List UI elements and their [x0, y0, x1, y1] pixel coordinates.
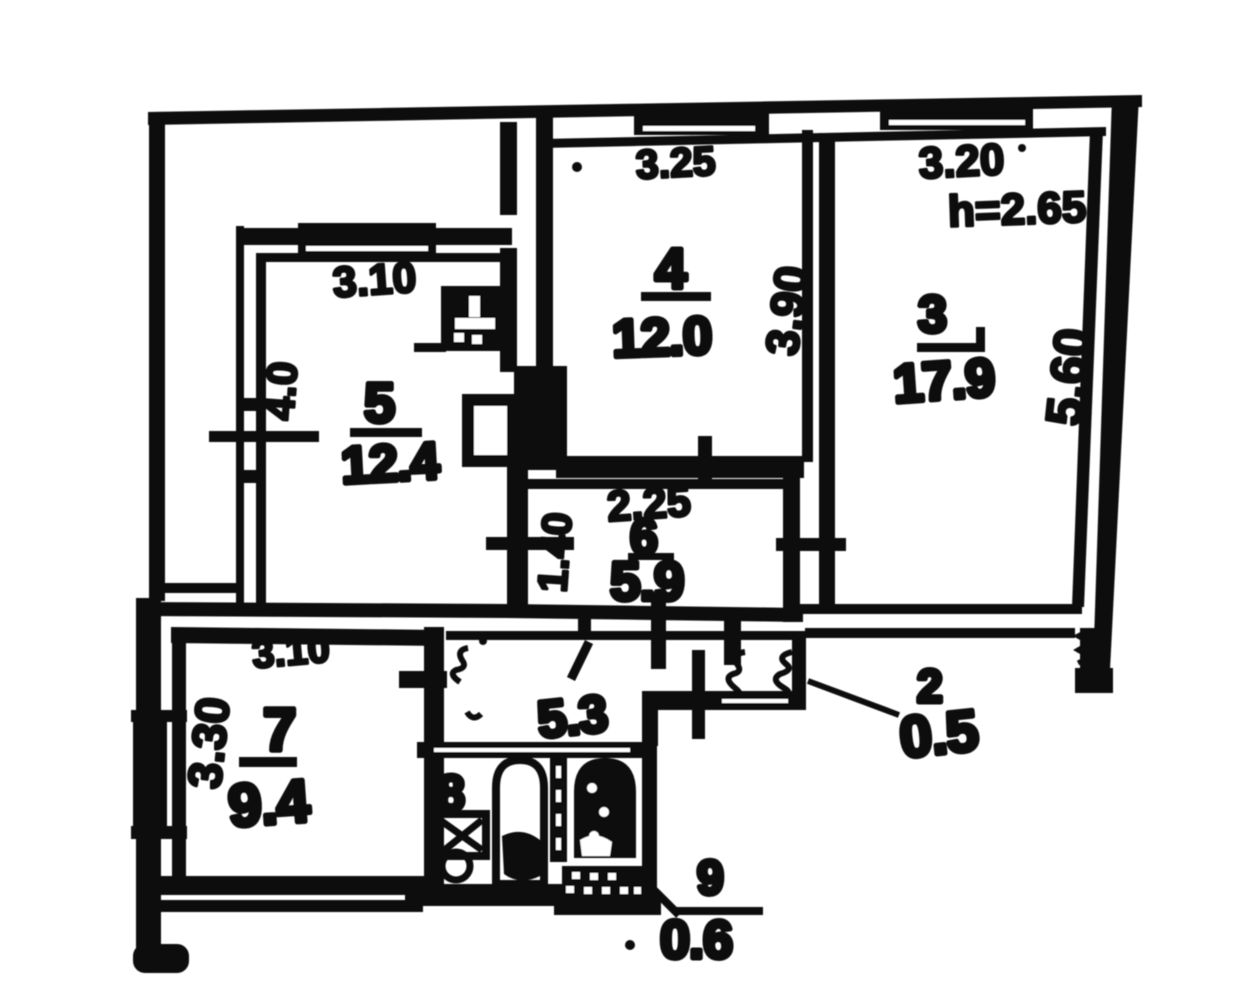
svg-text:5.9: 5.9	[610, 550, 683, 612]
svg-text:7: 7	[263, 696, 295, 763]
svg-text:3: 3	[918, 286, 946, 344]
svg-text:12.0: 12.0	[611, 306, 712, 368]
svg-text:8: 8	[437, 765, 464, 821]
svg-text:17.9: 17.9	[891, 348, 996, 415]
svg-text:3.90: 3.90	[755, 263, 818, 358]
svg-text:3.10: 3.10	[250, 626, 331, 677]
svg-text:5: 5	[364, 371, 394, 434]
svg-text:9: 9	[697, 852, 723, 905]
svg-text:9.4: 9.4	[226, 767, 313, 840]
svg-text:1.40: 1.40	[529, 511, 580, 594]
svg-text:3.10: 3.10	[331, 254, 418, 308]
svg-text:4: 4	[655, 237, 687, 301]
svg-text:3.20: 3.20	[917, 135, 1005, 188]
svg-text:4.0: 4.0	[255, 360, 306, 422]
svg-text:h=2.65: h=2.65	[947, 183, 1087, 237]
svg-text:5.60: 5.60	[1035, 326, 1101, 429]
svg-text:0.6: 0.6	[660, 910, 732, 970]
svg-text:3.25: 3.25	[635, 138, 717, 188]
svg-text:12.4: 12.4	[340, 432, 441, 495]
svg-text:0.5: 0.5	[896, 698, 980, 771]
svg-text:5.3: 5.3	[535, 685, 610, 750]
